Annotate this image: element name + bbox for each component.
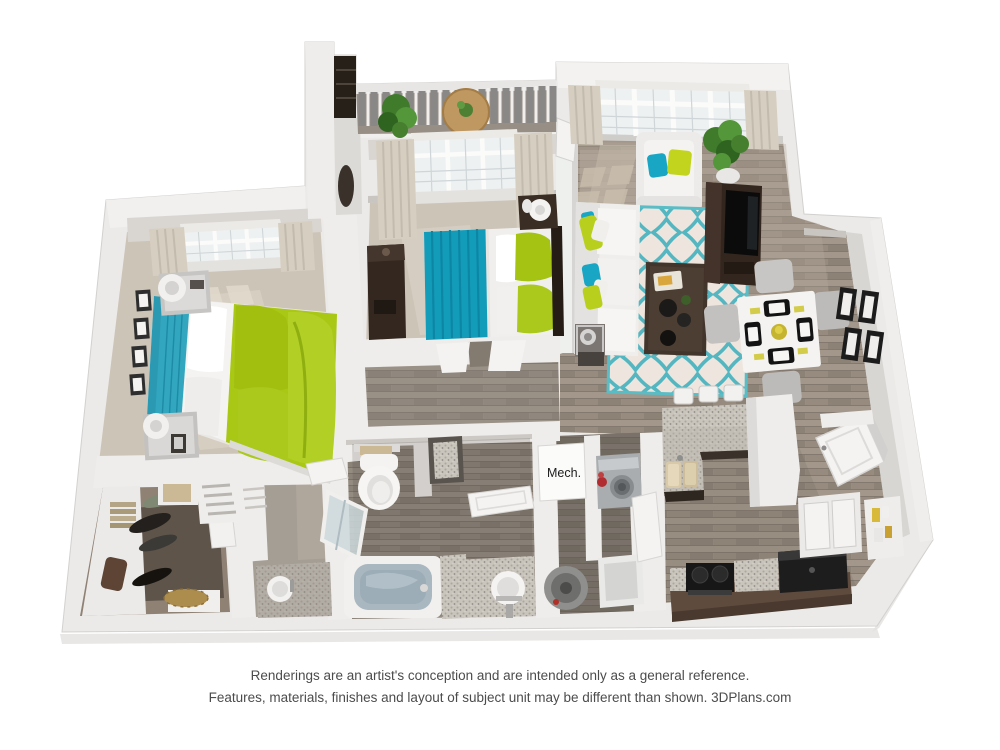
svg-text:Mech.: Mech.: [547, 466, 581, 480]
